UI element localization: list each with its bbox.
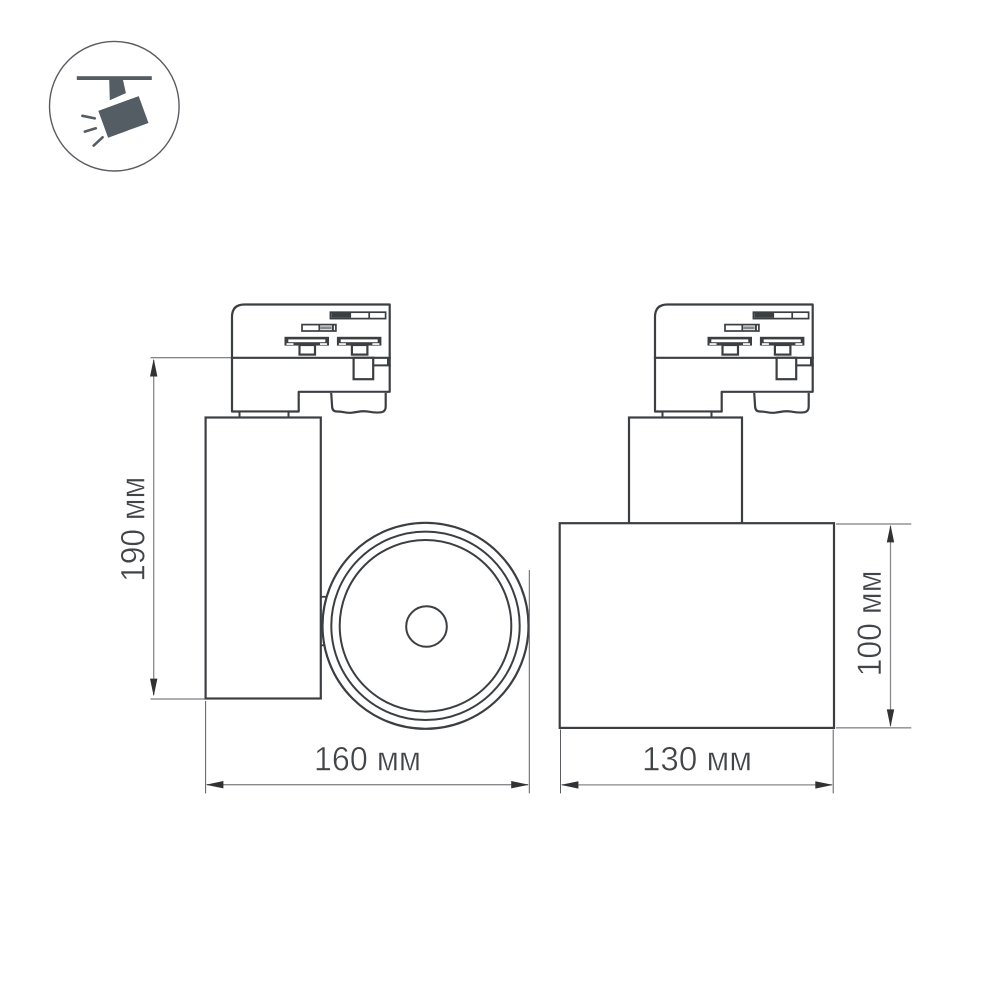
svg-text:130 мм: 130 мм <box>642 741 752 779</box>
svg-text:100 мм: 100 мм <box>851 570 889 676</box>
svg-text:190 мм: 190 мм <box>115 477 153 582</box>
svg-text:160 мм: 160 мм <box>314 741 421 779</box>
